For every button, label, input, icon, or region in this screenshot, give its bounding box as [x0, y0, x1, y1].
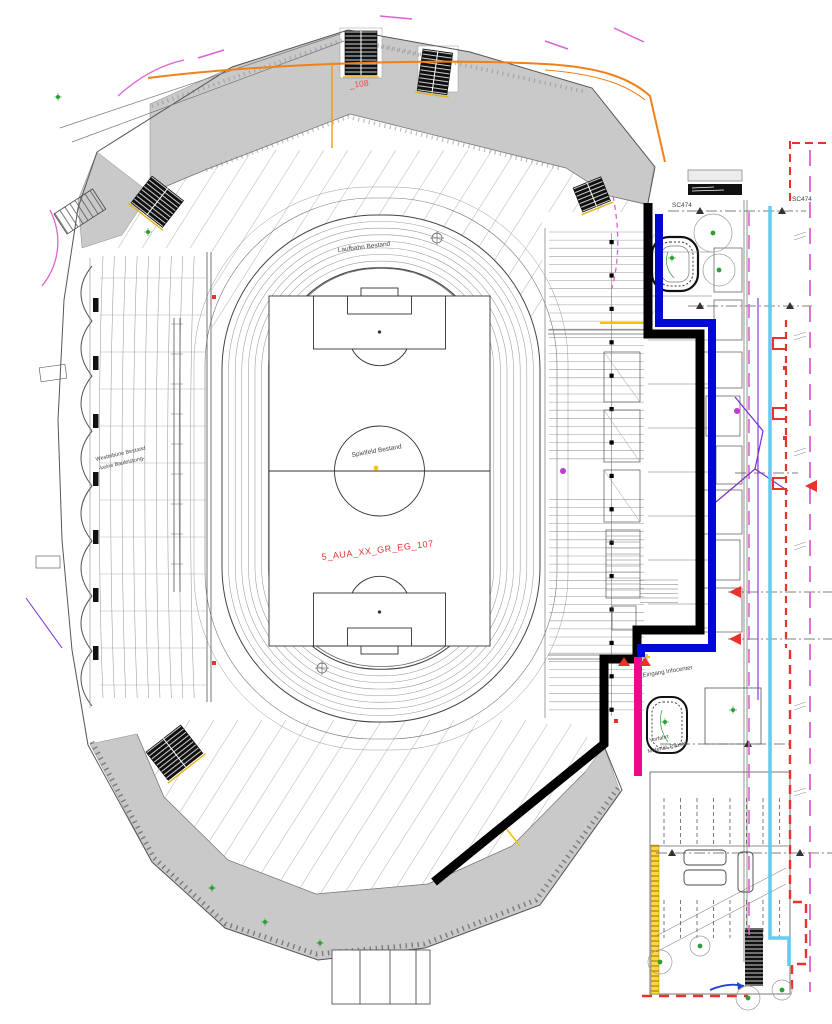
grid-label-left: SC474 [672, 202, 692, 209]
legend-black-bar [688, 184, 742, 195]
site-plan-drawing: Laufbahn Bestand Spielfeld Bestand 5_AUA… [0, 0, 832, 1024]
vehicle [684, 870, 726, 885]
grid-label-right: SC474 [792, 196, 812, 203]
soccer-field [269, 288, 490, 654]
plan-canvas: Laufbahn Bestand Spielfeld Bestand 5_AUA… [0, 0, 832, 1024]
stair-block [745, 928, 763, 986]
south-building [332, 950, 430, 1004]
forecourt-room [705, 688, 761, 744]
paving-strip [651, 845, 659, 994]
vehicle [738, 852, 753, 892]
west-stand-area [90, 248, 212, 708]
entrance-label: Eingang Infocenter [642, 665, 693, 679]
field-center-mark [374, 466, 379, 471]
vehicle [684, 850, 726, 865]
